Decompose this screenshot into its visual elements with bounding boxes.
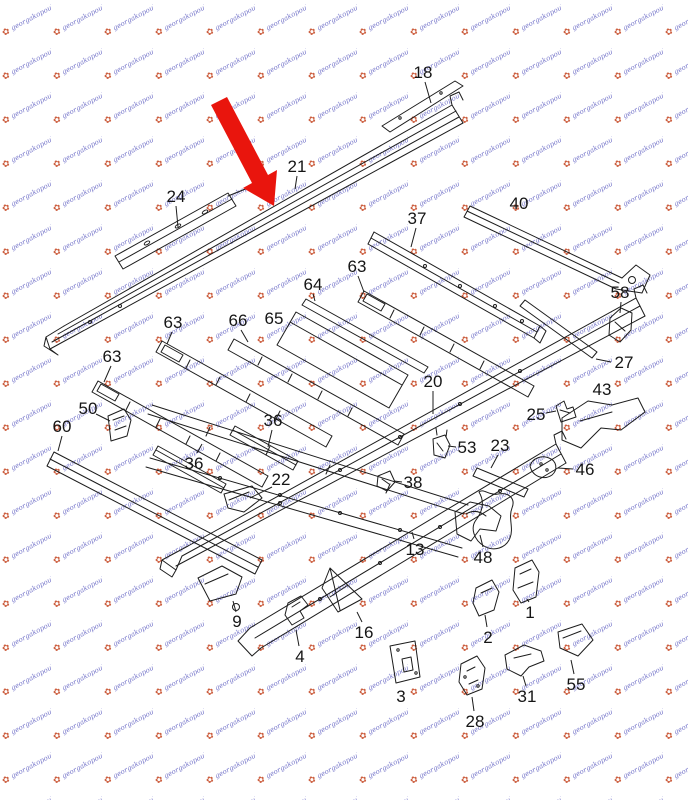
part-label-28-31: 28 bbox=[466, 712, 485, 731]
part-label-9-27: 9 bbox=[232, 612, 241, 631]
part-label-48-26: 48 bbox=[474, 548, 493, 567]
part-label-50-23: 50 bbox=[79, 399, 98, 418]
part-label-18-0: 18 bbox=[414, 63, 433, 82]
part-label-63-6: 63 bbox=[164, 313, 183, 332]
part-label-64-9: 64 bbox=[304, 275, 323, 294]
part-label-22-22: 22 bbox=[272, 470, 291, 489]
part-label-66-11: 66 bbox=[229, 311, 248, 330]
part-label-16-28: 16 bbox=[355, 623, 374, 642]
exploded-parts-diagram: ✿ georgakopoulos bbox=[0, 0, 688, 800]
part-label-3-30: 3 bbox=[396, 687, 405, 706]
part-label-25-15: 25 bbox=[527, 405, 546, 424]
part-label-63-8: 63 bbox=[348, 257, 367, 276]
part-label-40-4: 40 bbox=[510, 194, 529, 213]
part-label-23-16: 23 bbox=[491, 436, 510, 455]
parts-diagram-page: ✿ georgakopoulos bbox=[0, 0, 688, 800]
part-label-21-1: 21 bbox=[288, 157, 307, 176]
part-label-31-32: 31 bbox=[518, 687, 537, 706]
part-label-58-5: 58 bbox=[611, 283, 630, 302]
part-label-53-17: 53 bbox=[458, 438, 477, 457]
part-label-36-20: 36 bbox=[264, 411, 283, 430]
part-label-13-25: 13 bbox=[406, 540, 425, 559]
part-label-1-34: 1 bbox=[525, 603, 534, 622]
part-label-43-14: 43 bbox=[593, 380, 612, 399]
part-label-20-12: 20 bbox=[424, 372, 443, 391]
part-label-65-10: 65 bbox=[265, 309, 284, 328]
part-label-2-35: 2 bbox=[483, 628, 492, 647]
part-label-36-21: 36 bbox=[185, 454, 204, 473]
part-label-63-7: 63 bbox=[103, 347, 122, 366]
part-label-55-33: 55 bbox=[567, 675, 586, 694]
part-label-60-24: 60 bbox=[53, 417, 72, 436]
part-label-4-29: 4 bbox=[295, 647, 304, 666]
part-label-38-19: 38 bbox=[404, 473, 423, 492]
part-label-37-3: 37 bbox=[408, 209, 427, 228]
part-label-24-2: 24 bbox=[167, 187, 186, 206]
part-label-46-18: 46 bbox=[576, 460, 595, 479]
part-label-27-13: 27 bbox=[615, 353, 634, 372]
